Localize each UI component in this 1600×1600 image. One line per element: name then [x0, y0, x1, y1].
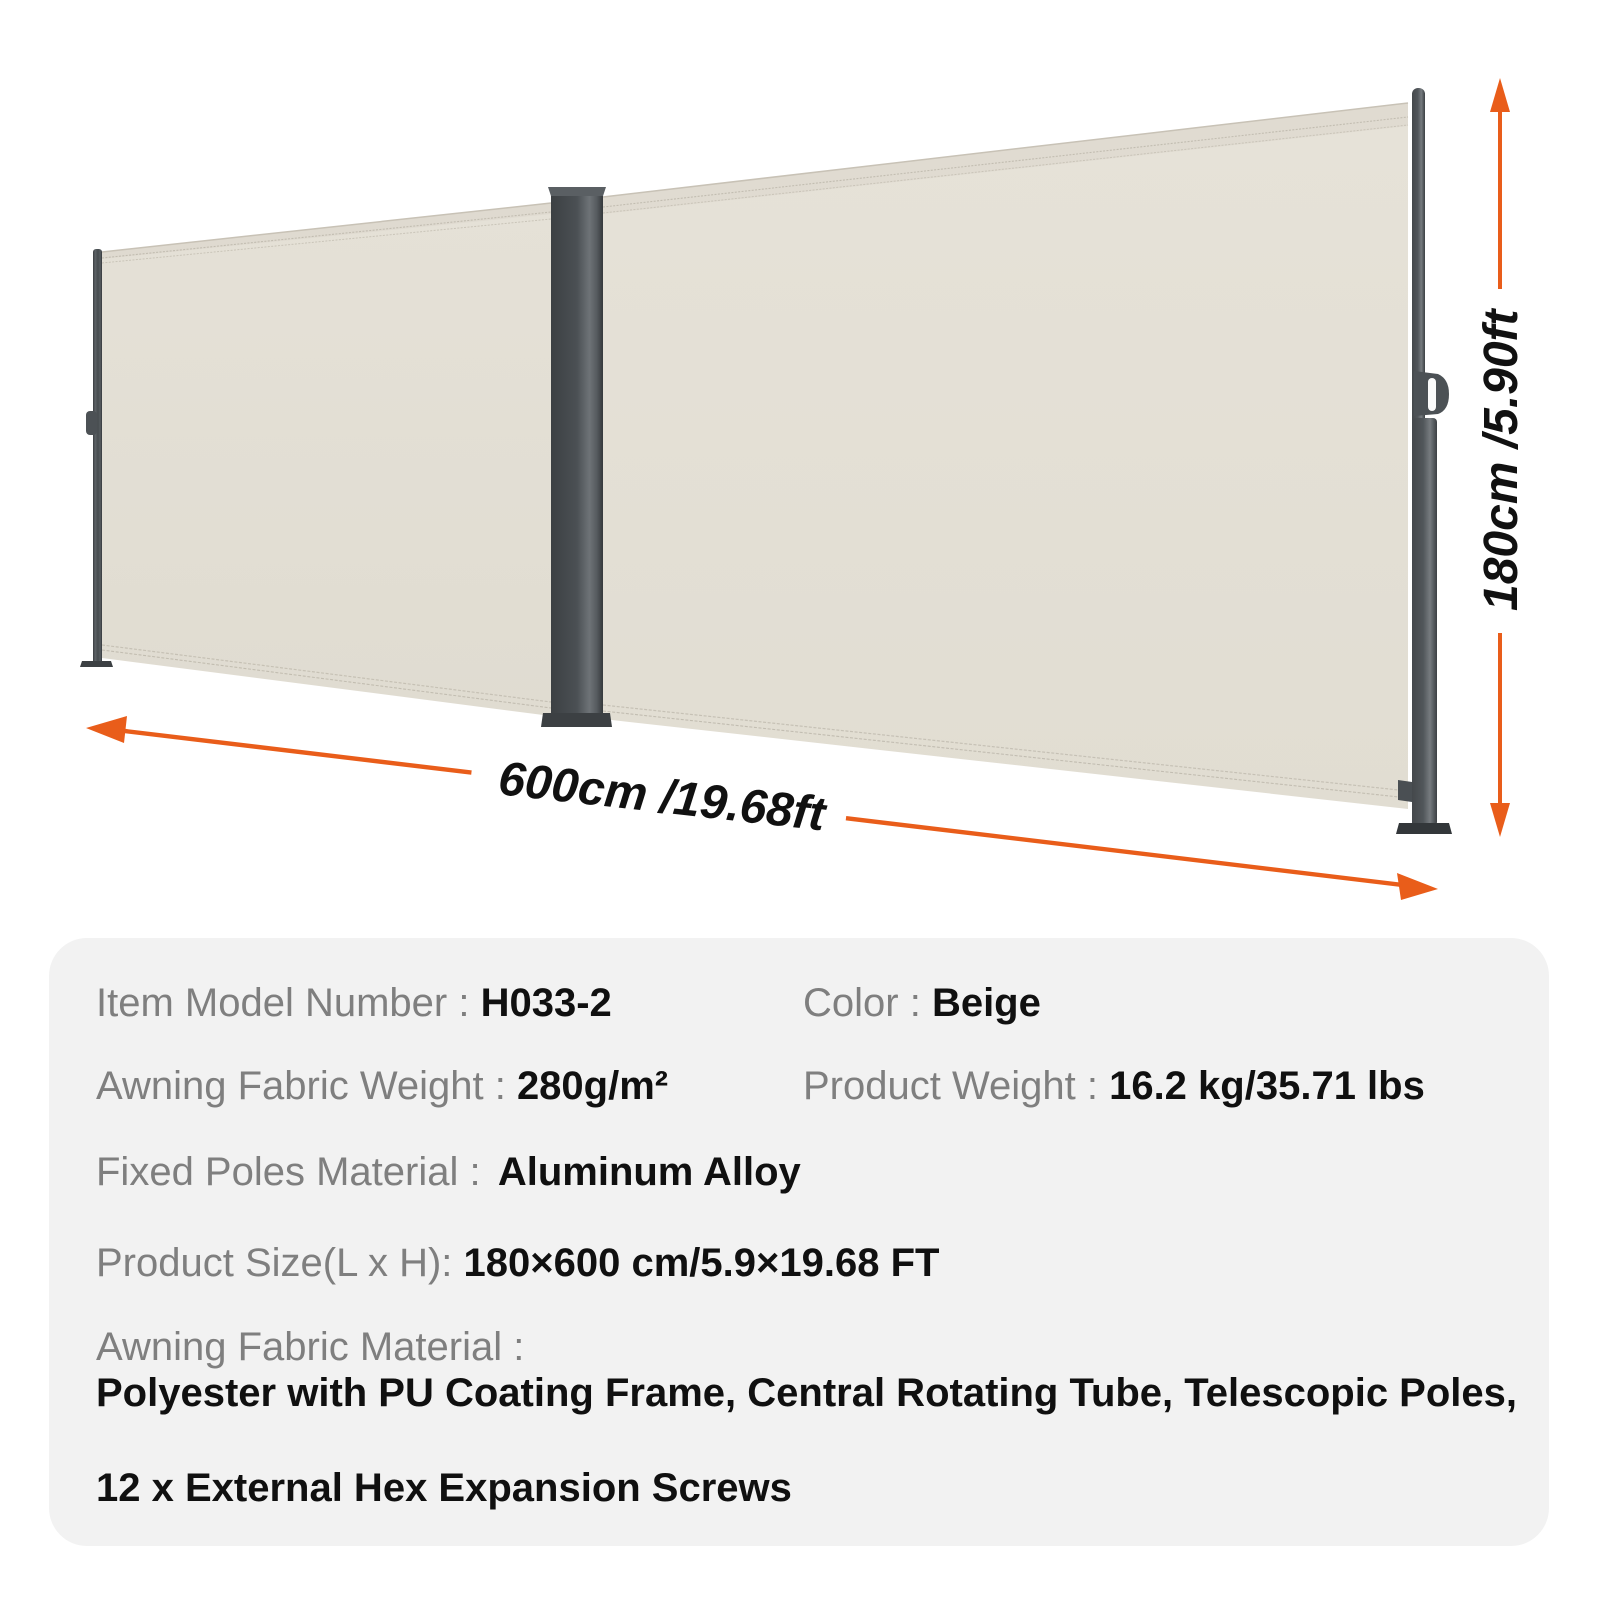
svg-text:180cm /5.90ft: 180cm /5.90ft [1475, 307, 1528, 611]
svg-text:600cm /19.68ft: 600cm /19.68ft [496, 752, 830, 841]
